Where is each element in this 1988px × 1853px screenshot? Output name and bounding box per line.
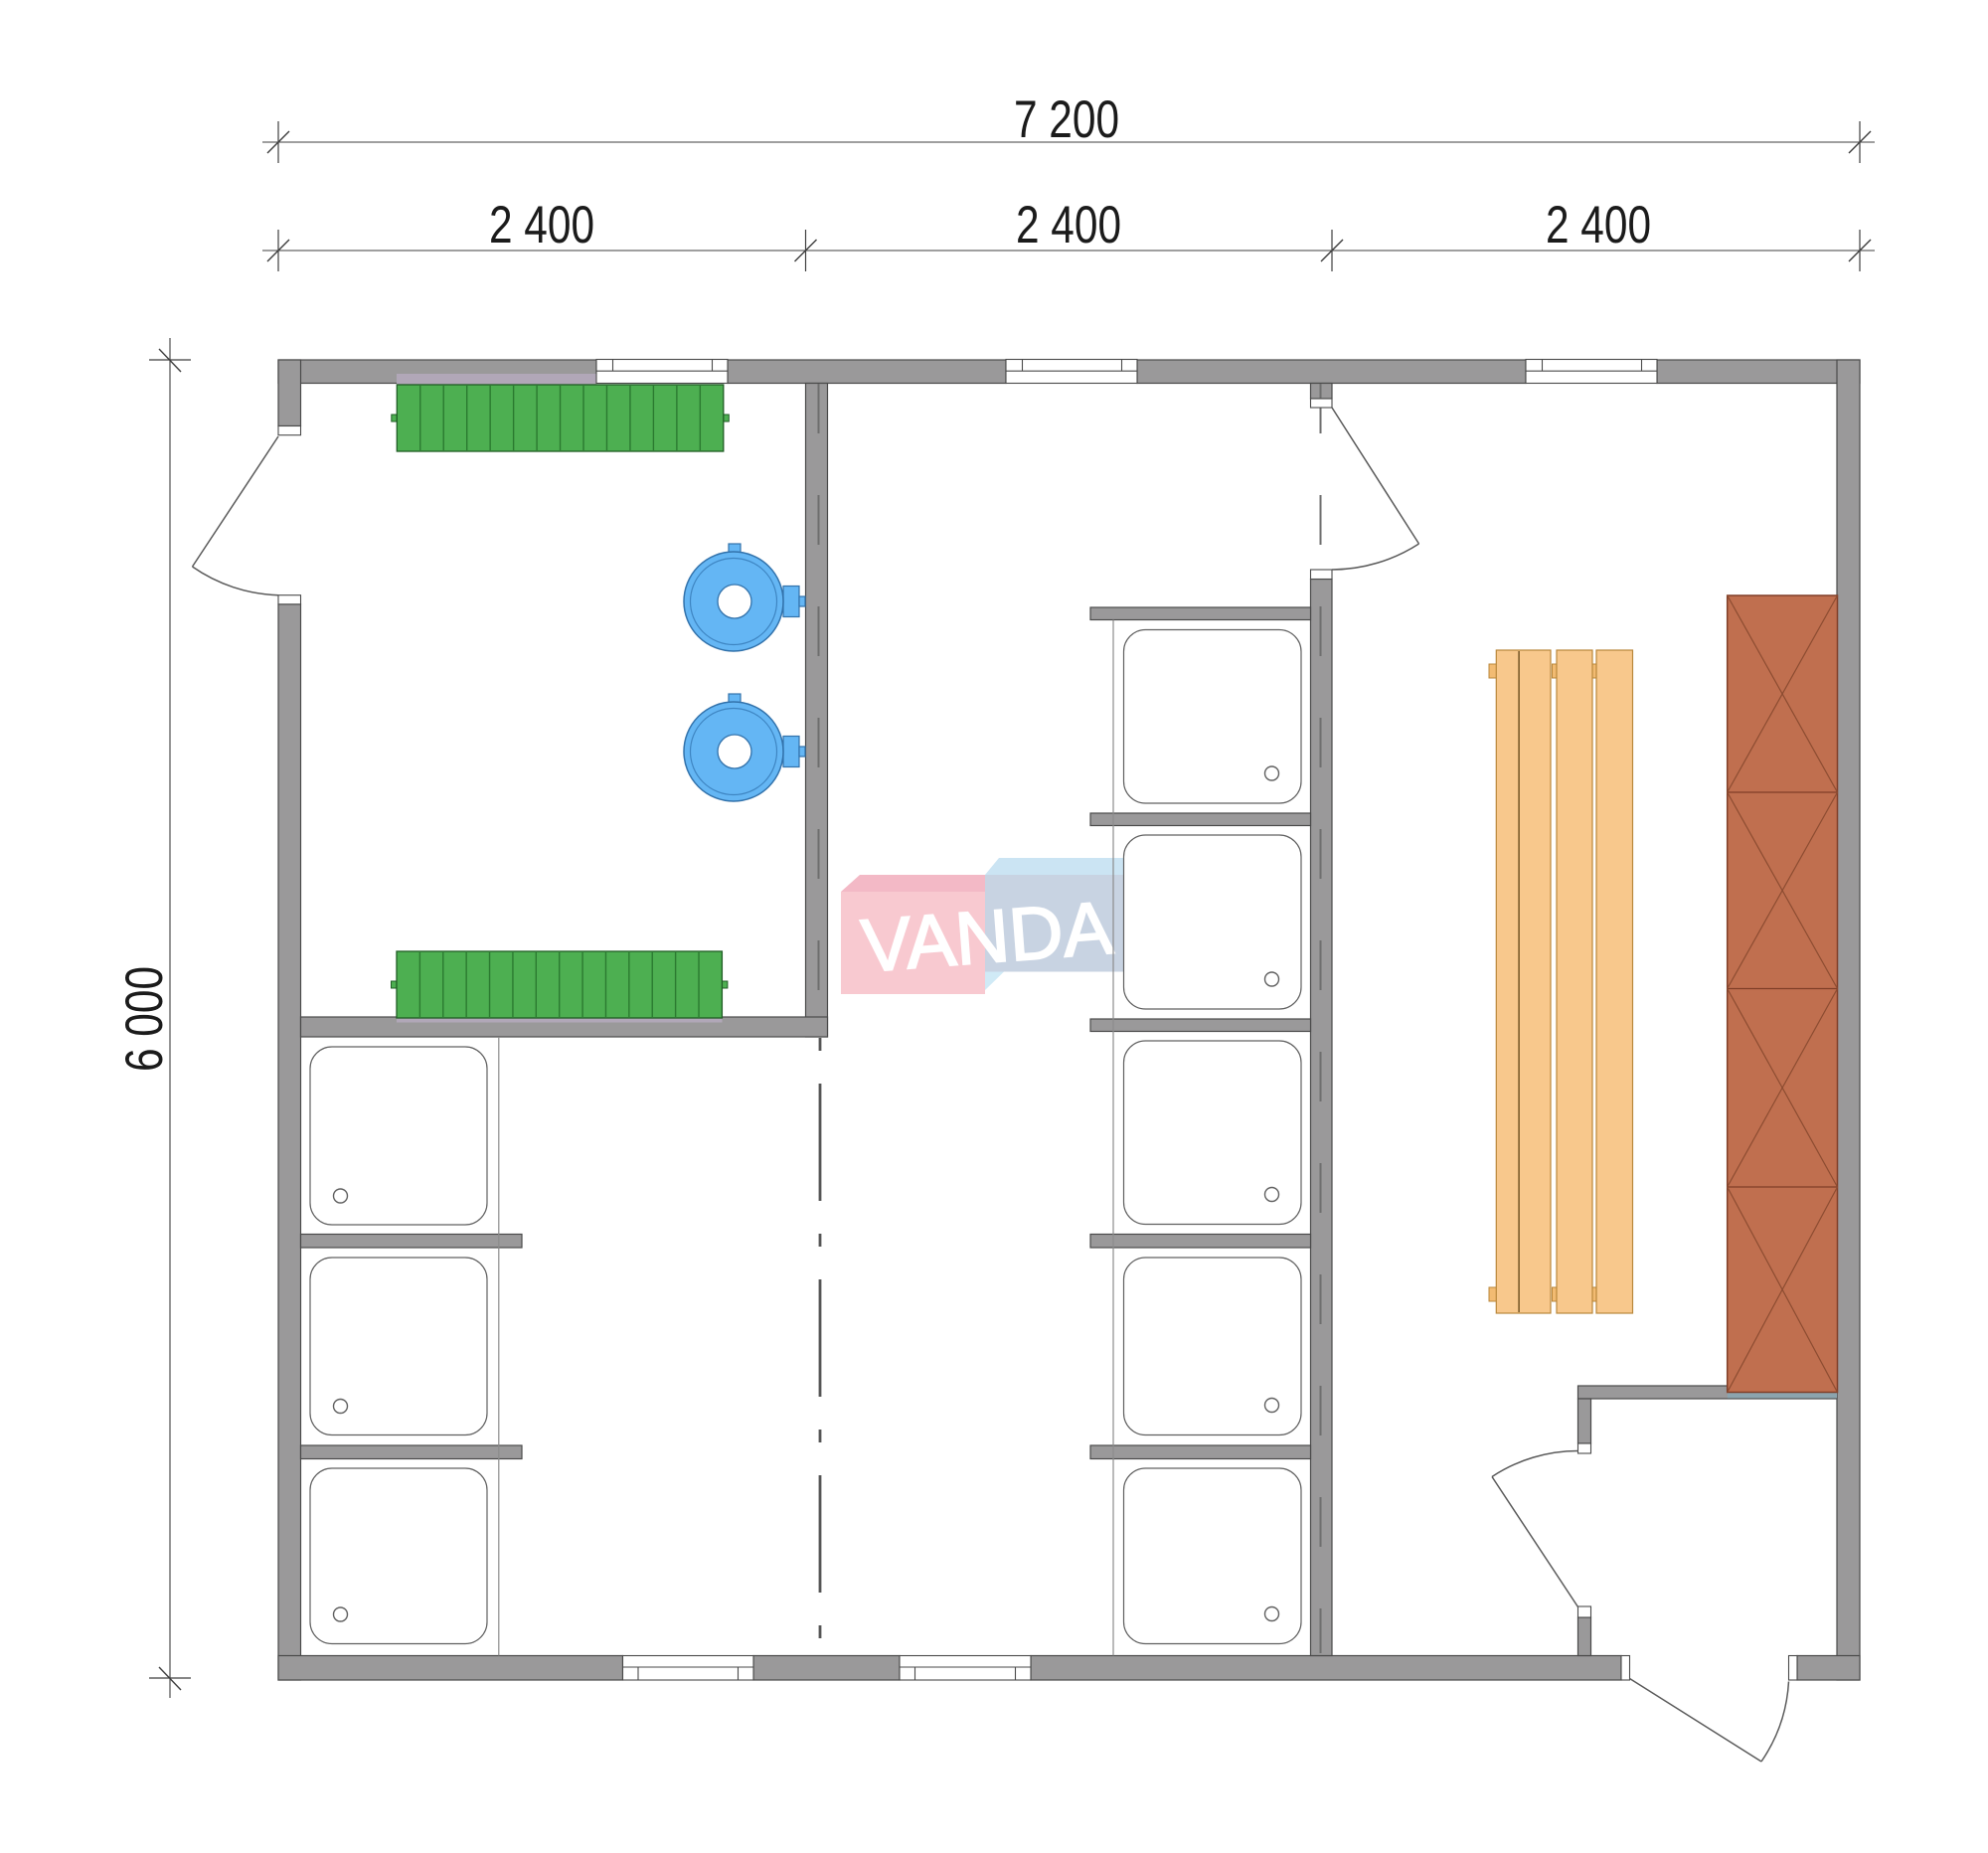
svg-text:6 000: 6 000: [115, 966, 174, 1072]
svg-text:2 400: 2 400: [1016, 196, 1121, 254]
svg-text:2 400: 2 400: [489, 196, 594, 254]
svg-text:7 200: 7 200: [1014, 90, 1119, 149]
svg-text:2 400: 2 400: [1546, 196, 1651, 254]
